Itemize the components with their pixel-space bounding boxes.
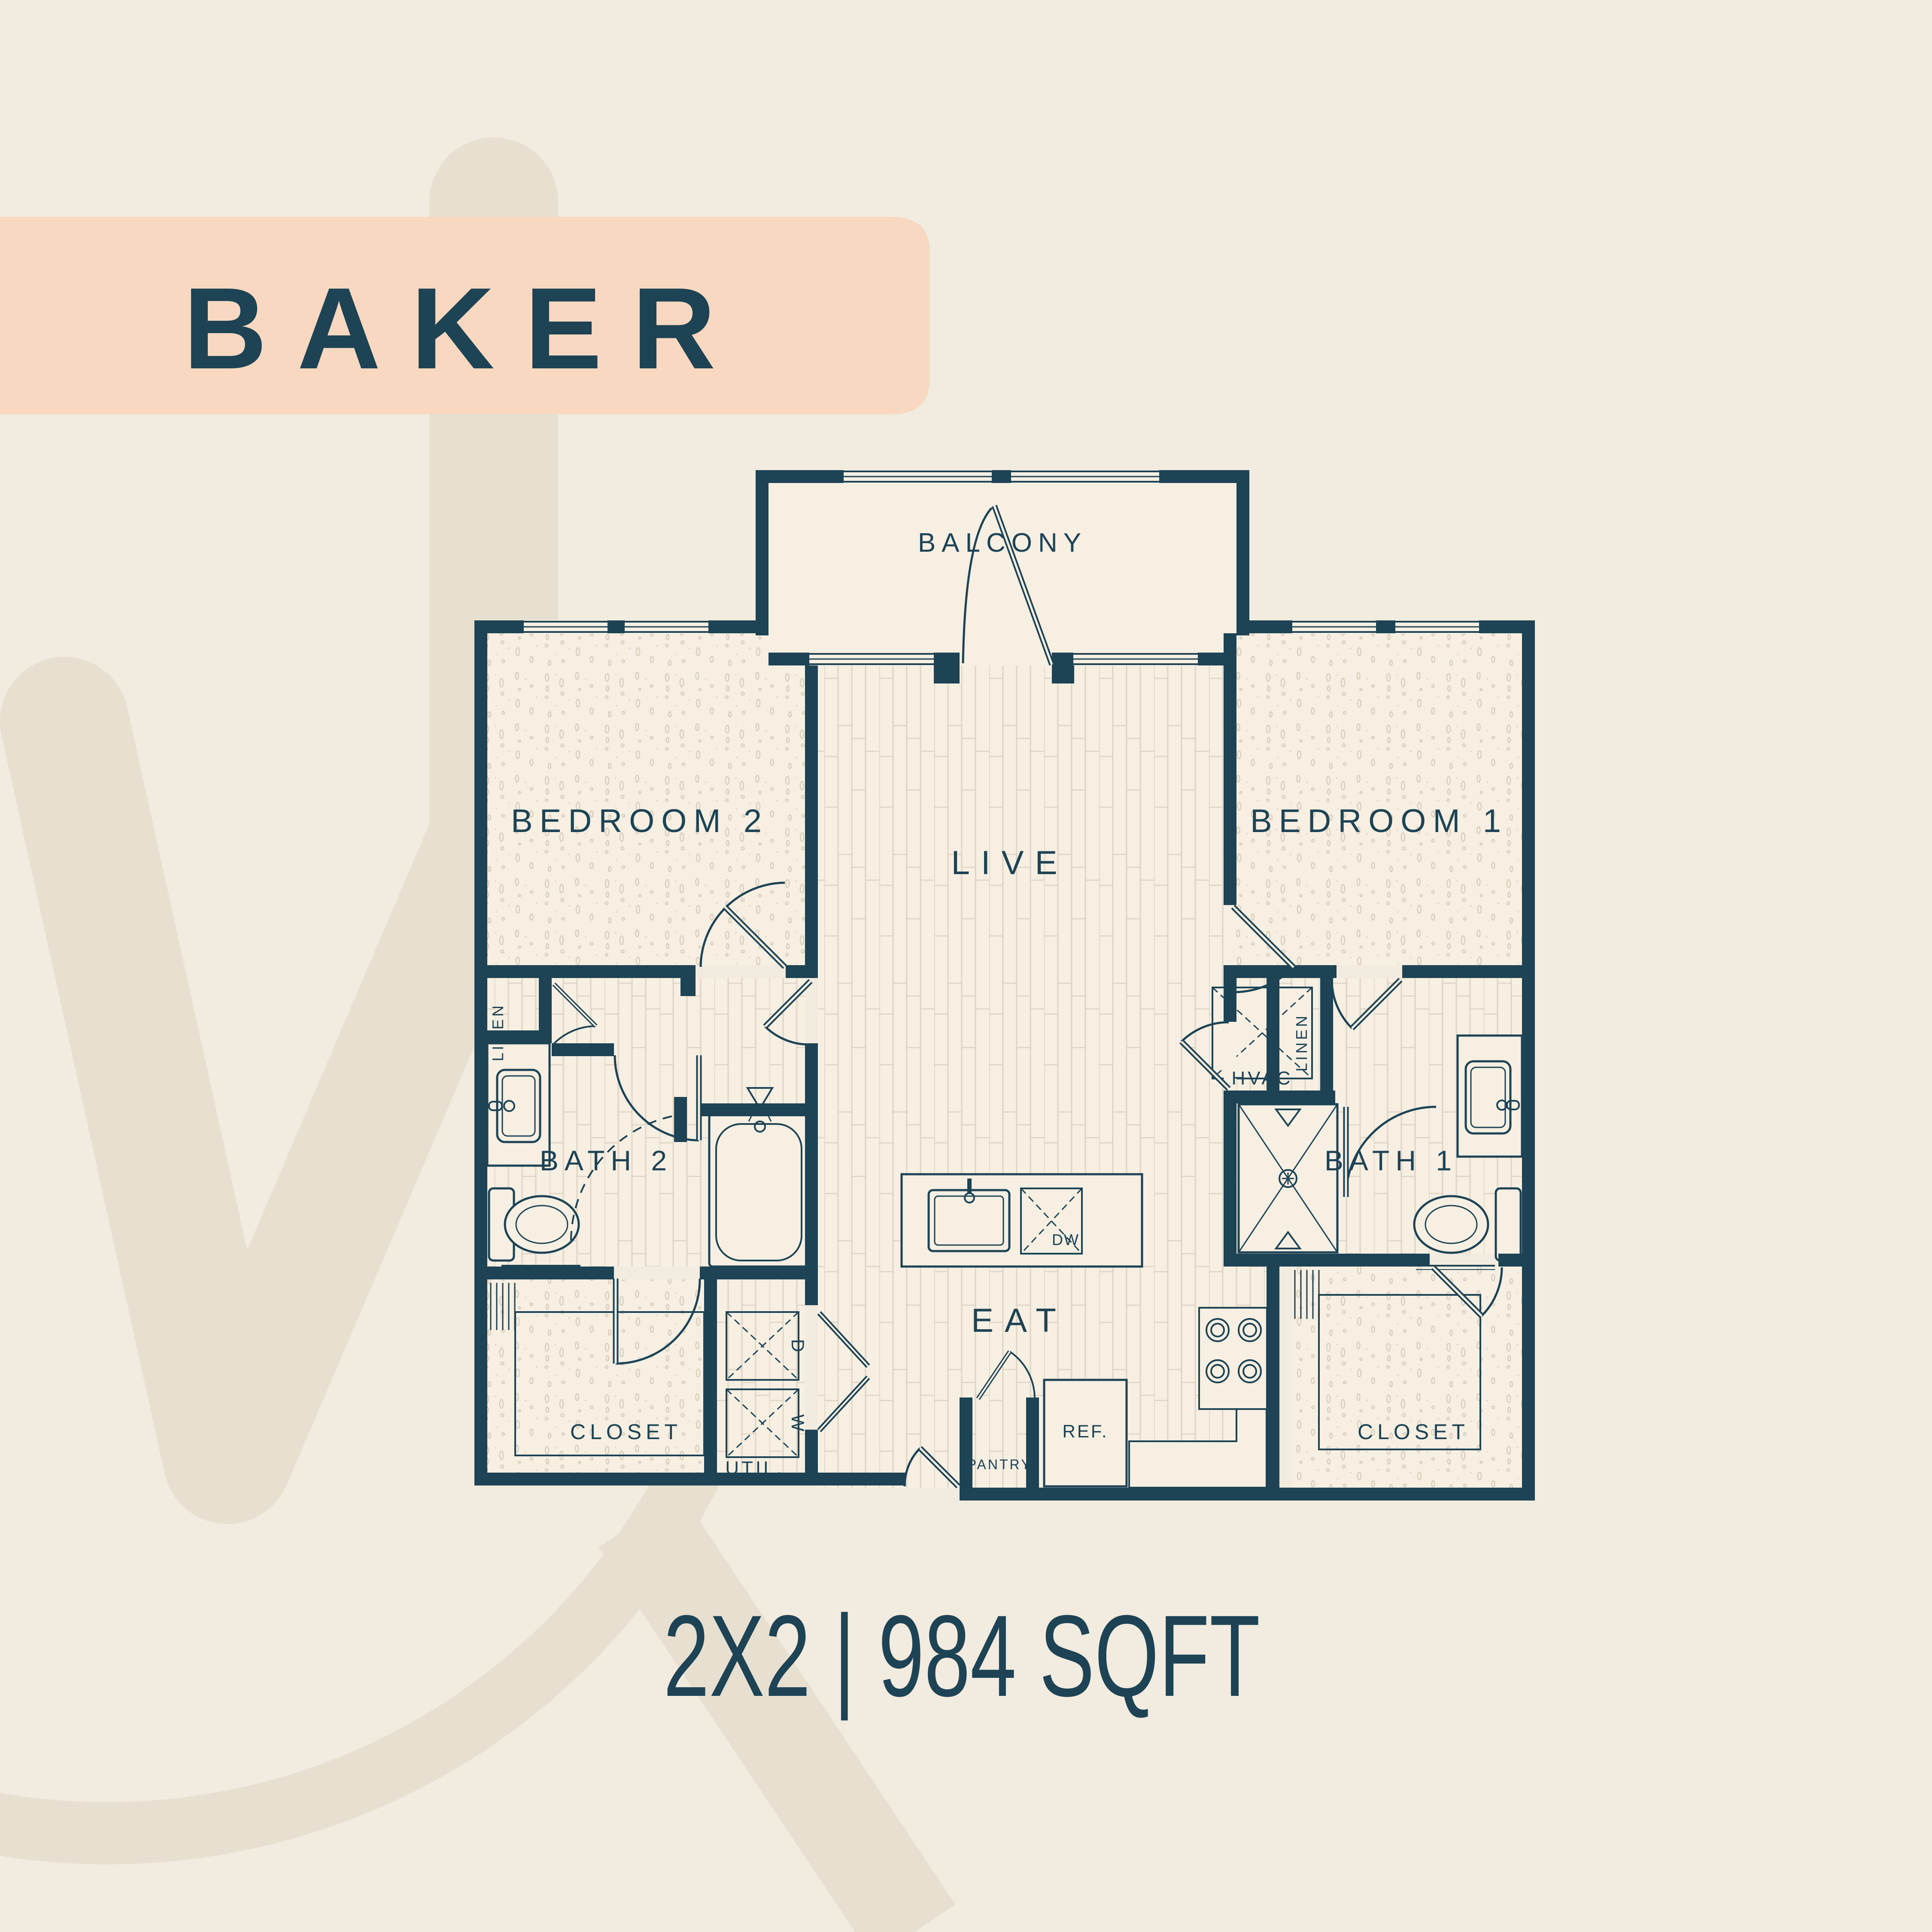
wall-jamb	[934, 653, 960, 683]
dryer-label: D	[788, 1339, 808, 1352]
wall	[700, 1103, 818, 1116]
bedroom2-floor	[487, 633, 805, 965]
window	[524, 620, 608, 633]
wall	[1224, 1254, 1430, 1267]
window	[1395, 620, 1479, 633]
window	[625, 620, 708, 633]
closet1-label: CLOSET	[1358, 1420, 1469, 1444]
wall	[1522, 620, 1535, 1501]
hvac-label: HVAC	[1232, 1068, 1293, 1089]
wall	[474, 1473, 906, 1485]
balcony-floor	[769, 483, 1236, 653]
pantry-floor	[972, 1410, 1026, 1488]
linen1-label: LINEN	[1293, 1013, 1310, 1072]
plan-title: BAKER	[183, 264, 746, 393]
wall	[805, 1043, 818, 1267]
wall	[1026, 1397, 1039, 1488]
bedroom2-label: BEDROOM 2	[511, 803, 769, 839]
wall	[1224, 965, 1337, 978]
live-label: LIVE	[951, 844, 1068, 881]
wall	[704, 1279, 717, 1473]
dishwasher-label: DW	[1052, 1231, 1079, 1249]
window	[1011, 470, 1159, 483]
window	[1073, 653, 1198, 665]
wall	[960, 1488, 1535, 1501]
bath2-label: BATH 2	[540, 1145, 673, 1176]
closet1-floor	[1292, 1267, 1522, 1488]
wall	[1224, 1091, 1335, 1103]
refrigerator-label: REF.	[1062, 1421, 1108, 1441]
wall	[474, 620, 769, 633]
wall-jamb	[680, 965, 696, 996]
wall	[1320, 978, 1333, 1103]
util-label: UTIL.	[725, 1458, 784, 1479]
pantry-label: PANTRY	[967, 1457, 1032, 1472]
wall	[1224, 1091, 1236, 1267]
live-floor	[818, 665, 1224, 1488]
shower	[1239, 1104, 1337, 1261]
wall	[474, 620, 487, 1485]
wall	[805, 1430, 818, 1473]
eat-label: EAT	[971, 1301, 1067, 1339]
wall	[1236, 470, 1249, 635]
wall	[1498, 1254, 1535, 1267]
wall	[1267, 1267, 1279, 1488]
stove	[1199, 1308, 1267, 1409]
closet2-label: CLOSET	[570, 1420, 682, 1444]
window	[809, 653, 934, 665]
wall	[700, 1267, 818, 1279]
balcony-label: BALCONY	[918, 528, 1087, 558]
wall	[805, 653, 818, 978]
wall	[1224, 633, 1236, 905]
wall	[1224, 978, 1236, 1022]
wall-jamb	[1052, 653, 1074, 683]
bedroom1-floor	[1236, 633, 1522, 965]
wall	[1402, 965, 1535, 978]
washer-label: W	[788, 1414, 808, 1431]
plan-spec-caption: 2X2 | 984 SQFT	[663, 1592, 1260, 1721]
wall	[960, 1397, 972, 1488]
bath1-vanity	[1458, 1036, 1522, 1157]
wall	[487, 965, 696, 978]
wall	[756, 470, 769, 635]
bedroom1-label: BEDROOM 1	[1250, 803, 1508, 839]
linen2-label: LINEN	[489, 1003, 507, 1061]
window	[1292, 620, 1376, 633]
wall	[1236, 620, 1535, 633]
wall	[552, 1043, 614, 1056]
wall	[786, 965, 818, 978]
window	[844, 470, 992, 483]
floorplan-svg: BAKER	[0, 0, 1932, 1932]
wall	[487, 1267, 614, 1279]
bath1-label: BATH 1	[1324, 1145, 1458, 1176]
wall	[674, 1097, 687, 1142]
wall	[756, 470, 1249, 483]
floorplan-page: BAKER	[0, 0, 1932, 1932]
kitchen-island	[902, 1174, 1142, 1267]
